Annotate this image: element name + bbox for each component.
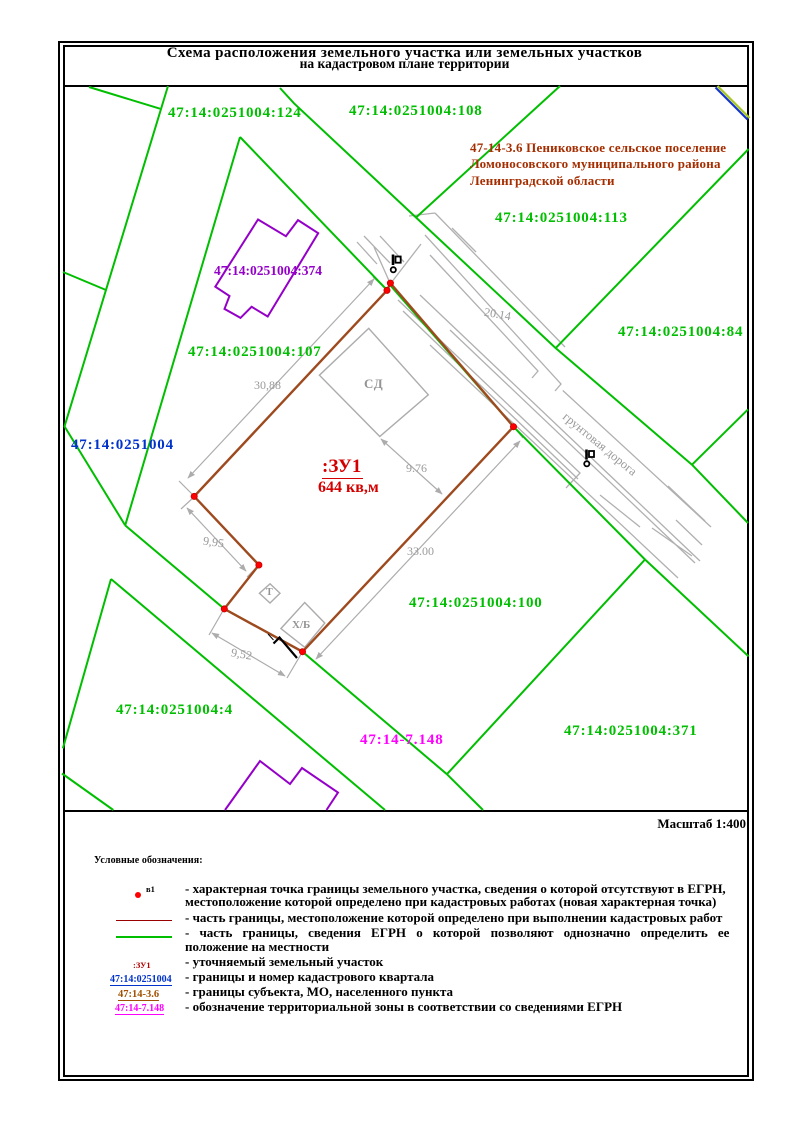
svg-text:грунтовая дорога: грунтовая дорога — [560, 410, 640, 479]
